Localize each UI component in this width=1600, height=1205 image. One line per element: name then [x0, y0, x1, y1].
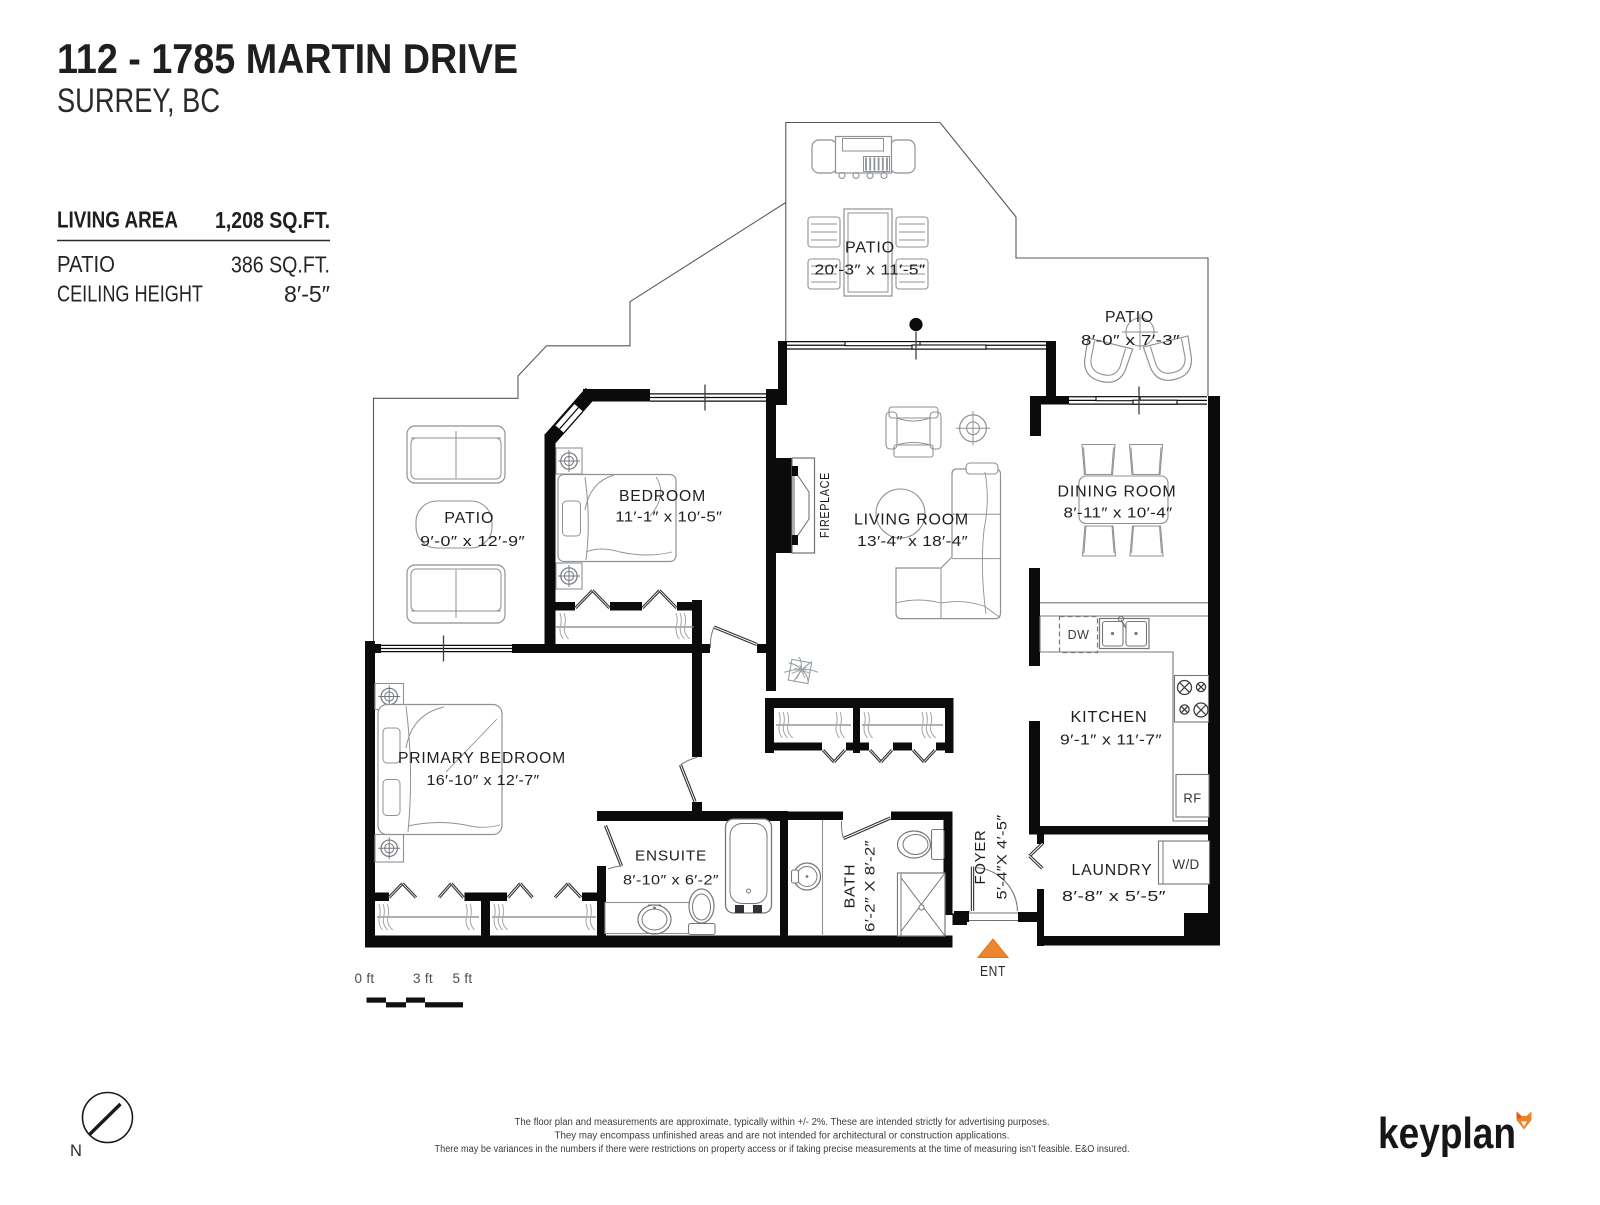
svg-text:CEILING HEIGHT: CEILING HEIGHT — [57, 281, 203, 307]
svg-text:FIREPLACE: FIREPLACE — [818, 472, 832, 538]
svg-text:SURREY, BC: SURREY, BC — [57, 82, 220, 120]
svg-text:BEDROOM: BEDROOM — [619, 488, 706, 505]
svg-text:5′-4″X 4′-5″: 5′-4″X 4′-5″ — [995, 815, 1010, 900]
svg-text:They may encompass unfinished: They may encompass unfinished areas and … — [555, 1131, 1010, 1142]
svg-text:8′-0″ x 7′-3″: 8′-0″ x 7′-3″ — [1081, 333, 1180, 349]
svg-text:FOYER: FOYER — [972, 830, 989, 885]
svg-text:LIVING ROOM: LIVING ROOM — [854, 512, 969, 529]
svg-text:PRIMARY BEDROOM: PRIMARY BEDROOM — [398, 750, 566, 767]
svg-text:8′-11″ x 10′-4″: 8′-11″ x 10′-4″ — [1064, 506, 1173, 522]
svg-text:8′-10″ x 6′-2″: 8′-10″ x 6′-2″ — [623, 873, 719, 888]
svg-text:PATIO: PATIO — [1105, 309, 1154, 326]
svg-text:16′-10″ x 12′-7″: 16′-10″ x 12′-7″ — [427, 773, 540, 789]
svg-text:LIVING AREA: LIVING AREA — [57, 207, 178, 233]
svg-text:ENT: ENT — [980, 963, 1006, 980]
svg-text:BATH: BATH — [842, 864, 859, 909]
svg-text:386 SQ.FT.: 386 SQ.FT. — [231, 252, 330, 278]
svg-text:PATIO: PATIO — [845, 239, 895, 256]
svg-text:1,208 SQ.FT.: 1,208 SQ.FT. — [215, 207, 330, 233]
svg-text:The floor plan and measurement: The floor plan and measurements are appr… — [515, 1117, 1050, 1128]
svg-text:6′-2″ X 8′-2″: 6′-2″ X 8′-2″ — [863, 840, 878, 932]
svg-text:DINING ROOM: DINING ROOM — [1058, 483, 1177, 500]
svg-text:11′-1″ x 10′-5″: 11′-1″ x 10′-5″ — [615, 510, 722, 526]
svg-text:13′-4″ x 18′-4″: 13′-4″ x 18′-4″ — [857, 534, 968, 550]
svg-text:8′-5″: 8′-5″ — [284, 281, 330, 307]
svg-text:RF: RF — [1183, 791, 1201, 806]
svg-text:9′-1″ x 11′-7″: 9′-1″ x 11′-7″ — [1060, 733, 1162, 749]
svg-text:8′-8″ x 5′-5″: 8′-8″ x 5′-5″ — [1062, 889, 1166, 905]
svg-text:There may be variances in the: There may be variances in the numbers if… — [435, 1144, 1130, 1155]
svg-text:5 ft: 5 ft — [453, 971, 473, 986]
svg-text:KITCHEN: KITCHEN — [1071, 709, 1148, 726]
svg-text:DW: DW — [1068, 628, 1090, 642]
svg-text:3 ft: 3 ft — [413, 971, 433, 986]
svg-text:20′-3″ x 11′-5″: 20′-3″ x 11′-5″ — [815, 262, 926, 278]
svg-text:keyplan: keyplan — [1378, 1109, 1516, 1158]
svg-text:ENSUITE: ENSUITE — [635, 848, 707, 865]
svg-text:PATIO: PATIO — [57, 251, 115, 277]
svg-text:0 ft: 0 ft — [355, 971, 375, 986]
svg-text:112 - 1785 MARTIN DRIVE: 112 - 1785 MARTIN DRIVE — [57, 35, 518, 82]
svg-text:PATIO: PATIO — [444, 510, 494, 527]
svg-text:LAUNDRY: LAUNDRY — [1072, 862, 1153, 879]
svg-text:9′-0″ x 12′-9″: 9′-0″ x 12′-9″ — [420, 534, 525, 550]
svg-text:W/D: W/D — [1172, 857, 1199, 872]
svg-text:N: N — [70, 1142, 82, 1160]
